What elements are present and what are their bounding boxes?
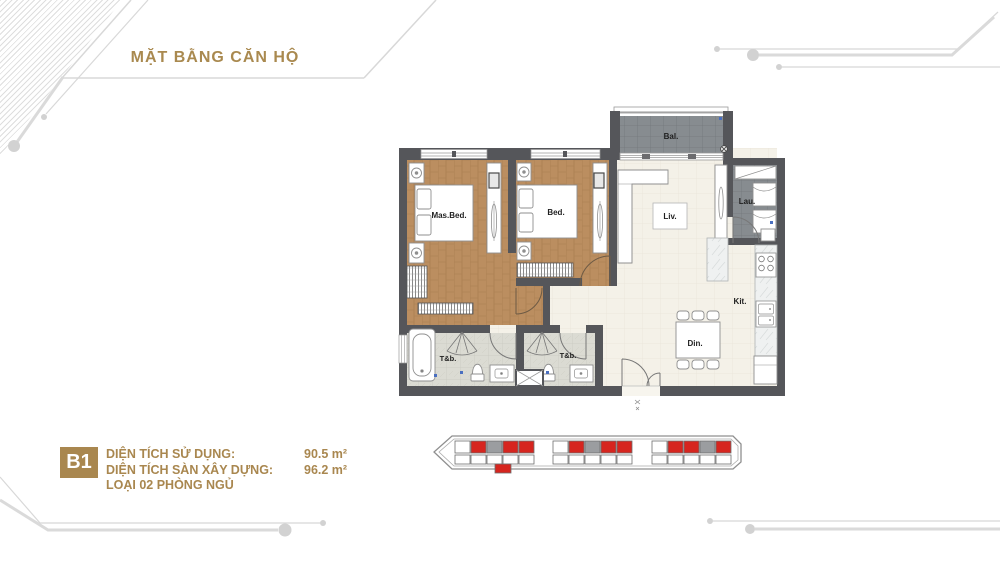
key-plan-unit-red	[716, 441, 731, 453]
kitchen-sink	[756, 301, 776, 327]
key-plan-unit-red	[668, 441, 683, 453]
key-plan-unit-white	[503, 455, 518, 464]
room-label-balcony: Bal.	[664, 132, 679, 141]
key-plan-unit-gray	[585, 441, 600, 453]
key-plan-unit-red	[519, 441, 534, 453]
key-plan-unit-red	[503, 441, 518, 453]
area-row-usable: DIỆN TÍCH SỬ DỤNG: 90.5 m²	[106, 447, 361, 463]
area-label: DIỆN TÍCH SÀN XÂY DỰNG:	[106, 463, 304, 479]
key-plan-unit-white	[471, 455, 486, 464]
kitchen-counter	[754, 245, 777, 384]
key-plan-unit-red	[684, 441, 699, 453]
room-label-master-bedroom: Mas.Bed.	[431, 211, 466, 220]
key-plan-unit-white	[652, 455, 667, 464]
key-plan-unit-red	[569, 441, 584, 453]
room-label-bathroom1: T&b.	[440, 354, 457, 363]
key-plan-unit-red	[617, 441, 632, 453]
room-label-bathroom2: T&b.	[560, 351, 577, 360]
key-plan-unit-white	[569, 455, 584, 464]
area-value: 90.5 m²	[304, 447, 347, 463]
unit-info-block: B1 DIỆN TÍCH SỬ DỤNG: 90.5 m² DIỆN TÍCH …	[60, 447, 361, 494]
key-plan-unit-white	[684, 455, 699, 464]
apartment-floor-plan: Bal. Mas.Bed. Bed. Liv. Lau. Kit. Din. T…	[390, 103, 790, 413]
entrance-marks	[635, 400, 640, 410]
room-label-dining: Din.	[687, 339, 702, 348]
key-plan-unit-white	[553, 455, 568, 464]
key-plan-unit-white	[716, 455, 731, 464]
building-key-plan	[430, 430, 750, 485]
area-value: 96.2 m²	[304, 463, 347, 479]
stove	[756, 253, 776, 277]
key-plan-unit-white	[585, 455, 600, 464]
key-plan-unit-white	[617, 455, 632, 464]
bedroom2-drawers	[517, 263, 573, 277]
unit-code-badge: B1	[60, 447, 98, 478]
left-wall-niche	[399, 335, 407, 363]
bedroom2-wardrobe	[593, 163, 607, 253]
floor-plan-page: MẶT BẰNG CĂN HỘ	[0, 0, 1000, 561]
master-wardrobe	[487, 163, 501, 253]
key-plan-unit-white	[455, 441, 470, 453]
fridge	[754, 356, 777, 384]
balcony-drain-icon	[721, 146, 728, 153]
tv-console	[715, 165, 727, 241]
key-plan-unit-white	[652, 441, 667, 453]
room-label-kitchen: Kit.	[734, 297, 747, 306]
key-plan-unit-red	[495, 464, 511, 473]
key-plan-unit-red	[601, 441, 616, 453]
key-plan-unit-white	[668, 455, 683, 464]
key-plan-unit-gray	[700, 441, 715, 453]
balcony-sliding-door	[620, 153, 723, 160]
room-label-living: Liv.	[663, 212, 676, 221]
room-label-laundry: Lau.	[739, 197, 755, 206]
area-row-gross: DIỆN TÍCH SÀN XÂY DỰNG: 96.2 m²	[106, 463, 361, 479]
key-plan-unit-gray	[487, 441, 502, 453]
key-plan-unit-white	[700, 455, 715, 464]
shaft	[516, 370, 543, 386]
area-label: DIỆN TÍCH SỬ DỤNG:	[106, 447, 304, 463]
vanity2	[570, 365, 593, 382]
key-plan-unit-white	[519, 455, 534, 464]
key-plan-unit-white	[455, 455, 470, 464]
room-label-bedroom: Bed.	[547, 208, 564, 217]
kitchen-cabinet-column	[707, 238, 728, 281]
page-title: MẶT BẰNG CĂN HỘ	[105, 49, 325, 67]
key-plan-unit-white	[601, 455, 616, 464]
unit-type-line: LOẠI 02 PHÒNG NGỦ	[106, 478, 361, 494]
key-plan-unit-white	[487, 455, 502, 464]
key-plan-unit-white	[553, 441, 568, 453]
key-plan-unit-red	[471, 441, 486, 453]
corner-hatch-decoration	[0, 0, 122, 156]
vanity1	[490, 365, 514, 382]
